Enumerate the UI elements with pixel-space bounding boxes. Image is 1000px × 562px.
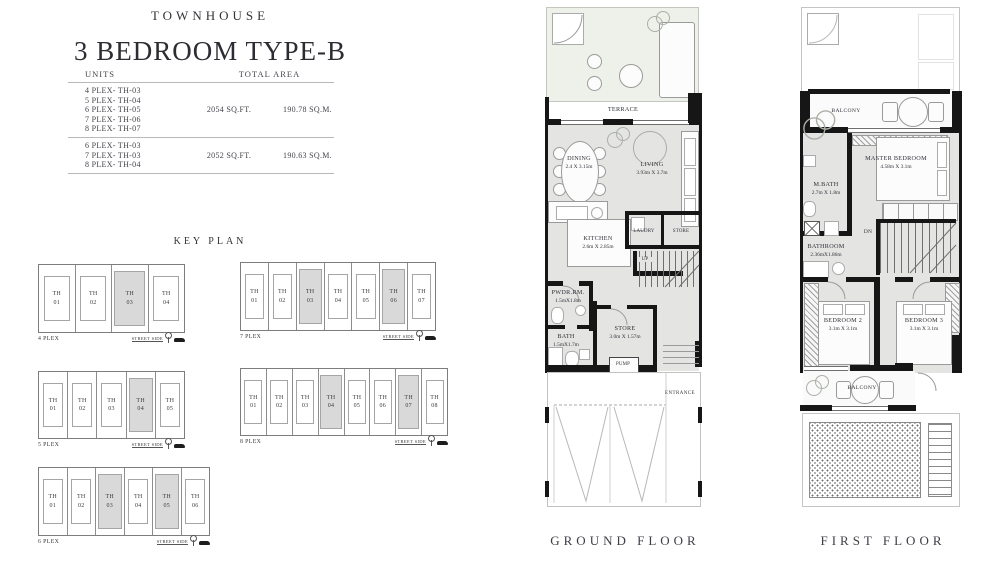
keyplan-unit-cell: TH04 bbox=[149, 265, 185, 332]
sink bbox=[579, 349, 590, 360]
unit-list: 6 PLEX- TH-037 PLEX- TH-038 PLEX- TH-04 bbox=[68, 141, 190, 170]
car-icon bbox=[174, 444, 185, 448]
outdoor-table bbox=[619, 64, 643, 88]
keyplan-unit-cell: TH01 bbox=[39, 372, 68, 438]
dn-label: DN bbox=[860, 229, 876, 235]
unit-label: TH07 bbox=[396, 369, 421, 435]
balcony-top-label: BALCONY bbox=[824, 108, 868, 116]
tree-icon bbox=[165, 332, 172, 339]
car-icon bbox=[174, 338, 185, 342]
bedroom2-label: BEDROOM 2 3.1m X 3.1m bbox=[816, 317, 870, 333]
unit-item: 6 PLEX- TH-05 bbox=[85, 105, 190, 115]
pillow bbox=[925, 304, 945, 315]
dining-label: DINING 2.4 X 3.15m bbox=[551, 155, 607, 171]
keyplan-8plex: TH01 TH02 TH03 bbox=[240, 368, 448, 445]
keyplan-unit-cell: TH05 bbox=[352, 263, 380, 330]
keyplan-unit-cell: TH04 bbox=[325, 263, 353, 330]
store-label: STORE 3.0m X 1.57m bbox=[599, 325, 651, 341]
living-rug bbox=[633, 131, 667, 165]
pouf bbox=[587, 76, 602, 91]
unit-label: TH01 bbox=[39, 468, 67, 535]
unit-label: TH04 bbox=[127, 372, 155, 438]
area-sqm: 190.78 SQ.M. bbox=[268, 105, 334, 114]
sink bbox=[824, 221, 839, 236]
terrace-label: TERRACE bbox=[573, 106, 673, 115]
pillow bbox=[903, 304, 923, 315]
unit-label: TH08 bbox=[422, 369, 447, 435]
unit-label: TH03 bbox=[112, 265, 148, 332]
tree-icon bbox=[428, 435, 435, 442]
pergola-lattice bbox=[809, 422, 921, 498]
keyplan-unit-cell: TH03 bbox=[112, 265, 149, 332]
unit-label: TH01 bbox=[39, 265, 75, 332]
unit-label: TH06 bbox=[370, 369, 395, 435]
keyplan-unit-cell: TH06 bbox=[182, 468, 210, 535]
plant-icon bbox=[806, 375, 830, 399]
unit-label: TH03 bbox=[96, 468, 124, 535]
plant-icon bbox=[607, 127, 631, 151]
keyplan-box: TH01 TH02 TH03 bbox=[38, 467, 210, 536]
unit-label: TH01 bbox=[241, 263, 268, 330]
keyplan-unit-cell: TH01 bbox=[39, 468, 68, 535]
keyplan-unit-cell: TH06 bbox=[370, 369, 396, 435]
keyplan-unit-cell: TH04 bbox=[319, 369, 345, 435]
stove bbox=[591, 207, 603, 219]
unit-label: TH06 bbox=[380, 263, 407, 330]
plex-name: 8 PLEX bbox=[240, 439, 261, 445]
keyplan-unit-cell: TH01 bbox=[39, 265, 76, 332]
car-icon bbox=[437, 441, 448, 445]
unit-label: TH02 bbox=[76, 265, 112, 332]
up-label: UP bbox=[638, 257, 652, 262]
keyplan-heading: KEY PLAN bbox=[0, 236, 420, 247]
shower-box bbox=[804, 221, 820, 236]
street-side: STREET SIDE bbox=[395, 438, 448, 445]
door-swing-arc bbox=[918, 373, 936, 391]
unit-label: TH04 bbox=[319, 369, 344, 435]
unit-label: TH05 bbox=[345, 369, 370, 435]
plex-name: 6 PLEX bbox=[38, 539, 59, 545]
keyplan-unit-cell: TH04 bbox=[127, 372, 156, 438]
first-floor-label: FIRST FLOOR bbox=[778, 533, 988, 549]
ground-floor-plan: TERRACE DINING 2.4 X 3.15m L bbox=[545, 5, 702, 510]
louver-panel bbox=[928, 423, 952, 497]
unit-label: TH07 bbox=[408, 263, 435, 330]
keyplan-unit-cell: TH03 bbox=[293, 369, 319, 435]
unit-list: 4 PLEX- TH-035 PLEX- TH-046 PLEX- TH-057… bbox=[68, 86, 190, 134]
door-swing-arc bbox=[611, 309, 627, 325]
tree-icon bbox=[416, 330, 423, 337]
keyplan-unit-cell: TH06 bbox=[380, 263, 408, 330]
unit-label: TH04 bbox=[125, 468, 153, 535]
unit-item: 6 PLEX- TH-03 bbox=[85, 141, 190, 151]
keyplan-5plex: TH01 TH02 TH03 bbox=[38, 371, 185, 448]
keyplan-unit-cell: TH01 bbox=[241, 263, 269, 330]
faint-furniture bbox=[918, 62, 954, 90]
living-label: LIVING 3.93m X 3.7m bbox=[623, 161, 681, 177]
door-swing-arc bbox=[553, 14, 583, 44]
pouf bbox=[587, 54, 602, 69]
unit-label: TH02 bbox=[68, 372, 96, 438]
unit-label: TH02 bbox=[269, 263, 296, 330]
area-sqft: 2054 SQ.FT. bbox=[190, 105, 268, 114]
keyplan-unit-cell: TH04 bbox=[125, 468, 154, 535]
bathtub bbox=[803, 261, 829, 278]
kitchen-label: KITCHEN 2.6m X 2.85m bbox=[569, 235, 627, 251]
pillow bbox=[937, 170, 947, 196]
keyplan-unit-cell: TH05 bbox=[156, 372, 184, 438]
unit-item: 4 PLEX- TH-03 bbox=[85, 86, 190, 96]
plex-name: 7 PLEX bbox=[240, 334, 261, 340]
unit-label: TH02 bbox=[68, 468, 96, 535]
stair-winder-lines bbox=[910, 223, 956, 273]
balcony-table bbox=[898, 97, 928, 127]
pillow bbox=[845, 304, 865, 315]
unit-item: 5 PLEX- TH-04 bbox=[85, 96, 190, 106]
dining-table bbox=[561, 141, 599, 203]
brand-title: TOWNHOUSE bbox=[0, 8, 420, 24]
keyplan-unit-cell: TH03 bbox=[96, 468, 125, 535]
pillow bbox=[823, 304, 843, 315]
plex-name: 5 PLEX bbox=[38, 442, 59, 448]
table-row-group: 6 PLEX- TH-037 PLEX- TH-038 PLEX- TH-04 … bbox=[68, 137, 334, 173]
keyplan-unit-cell: TH05 bbox=[345, 369, 371, 435]
unit-item: 8 PLEX- TH-04 bbox=[85, 160, 190, 170]
unit-label: TH03 bbox=[97, 372, 125, 438]
bathroom-label: BATHROOM 2.36mX1.86m bbox=[804, 243, 848, 259]
keyplan-6plex: TH01 TH02 TH03 bbox=[38, 467, 210, 545]
keyplan-unit-cell: TH07 bbox=[396, 369, 422, 435]
keyplan-unit-cell: TH02 bbox=[68, 372, 97, 438]
unit-label: TH03 bbox=[297, 263, 324, 330]
door-swing-arc bbox=[828, 282, 845, 299]
balcony-bottom-label: BALCONY bbox=[841, 385, 883, 393]
sink bbox=[803, 155, 816, 167]
powder-label: PWDR.RM. 1.5mX1.8m bbox=[547, 289, 589, 305]
street-side: STREET SIDE bbox=[132, 441, 185, 448]
keyplan-unit-cell: TH03 bbox=[97, 372, 126, 438]
store-upper-label: STORE bbox=[665, 229, 697, 234]
terrace-door bbox=[552, 13, 584, 45]
unit-label: TH01 bbox=[39, 372, 67, 438]
keyplan-unit-cell: TH02 bbox=[68, 468, 97, 535]
area-sqm: 190.63 SQ.M. bbox=[268, 151, 334, 160]
unit-item: 7 PLEX- TH-03 bbox=[85, 151, 190, 161]
units-area-table: UNITS TOTAL AREA 4 PLEX- TH-035 PLEX- TH… bbox=[68, 66, 334, 174]
keyplan-box: TH01 TH02 TH03 bbox=[240, 262, 436, 331]
keyplan-unit-cell: TH02 bbox=[267, 369, 293, 435]
table-row-group: 4 PLEX- TH-035 PLEX- TH-046 PLEX- TH-057… bbox=[68, 82, 334, 137]
bedroom3-label: BEDROOM 3 3.1m X 3.1m bbox=[898, 317, 950, 333]
unit-item: 8 PLEX- TH-07 bbox=[85, 124, 190, 134]
keyplan-unit-cell: TH02 bbox=[76, 265, 113, 332]
table-header-row: UNITS TOTAL AREA bbox=[68, 66, 334, 82]
bath-label: BATH 1.5mX1.7m bbox=[547, 333, 585, 349]
street-side: STREET SIDE bbox=[157, 538, 210, 545]
keyplan-unit-cell: TH03 bbox=[297, 263, 325, 330]
unit-label: TH04 bbox=[325, 263, 352, 330]
keyplan-unit-cell: TH07 bbox=[408, 263, 435, 330]
unit-label: TH03 bbox=[293, 369, 318, 435]
unit-label: TH05 bbox=[352, 263, 379, 330]
sink bbox=[556, 206, 588, 220]
balcony-bottom: BALCONY bbox=[803, 371, 915, 407]
unit-label: TH04 bbox=[149, 265, 185, 332]
terrace-garden bbox=[546, 7, 699, 102]
keyplan-box: TH01 TH02 TH03 bbox=[240, 368, 448, 436]
roof-terrace bbox=[801, 7, 960, 96]
street-side: STREET SIDE bbox=[383, 333, 436, 340]
roof-door bbox=[807, 13, 839, 45]
master-bedroom-label: MASTER BEDROOM 4.58m X 3.1m bbox=[852, 155, 940, 171]
page-title: 3 BEDROOM TYPE-B bbox=[0, 36, 420, 67]
first-floor-plan: BALCONY MASTER BEDROOM 4.58m X 3.1m bbox=[800, 5, 962, 510]
unit-label: TH06 bbox=[182, 468, 210, 535]
unit-label: TH05 bbox=[153, 468, 181, 535]
table-bottom-rule bbox=[68, 173, 334, 174]
column-header-total-area: TOTAL AREA bbox=[205, 69, 334, 79]
plant-icon bbox=[647, 11, 671, 35]
floorplan-page: TOWNHOUSE 3 BEDROOM TYPE-B UNITS TOTAL A… bbox=[0, 0, 1000, 562]
unit-label: TH02 bbox=[267, 369, 292, 435]
sink bbox=[575, 305, 586, 316]
unit-label: TH05 bbox=[156, 372, 184, 438]
toilet bbox=[803, 201, 816, 217]
keyplan-unit-cell: TH08 bbox=[422, 369, 447, 435]
toilet bbox=[551, 307, 564, 324]
faint-furniture bbox=[918, 14, 954, 60]
car-icon bbox=[199, 541, 210, 545]
door-swing-arc bbox=[913, 282, 930, 299]
unit-item: 7 PLEX- TH-06 bbox=[85, 115, 190, 125]
ground-floor-label: GROUND FLOOR bbox=[520, 533, 730, 549]
column-header-units: UNITS bbox=[68, 69, 205, 79]
laundry-label: LAUDRY bbox=[628, 229, 660, 234]
keyplan-unit-cell: TH01 bbox=[241, 369, 267, 435]
plex-name: 4 PLEX bbox=[38, 336, 59, 342]
keyplan-7plex: TH01 TH02 TH03 bbox=[240, 262, 436, 340]
mbath-label: M.BATH 2.7m X 1.8m bbox=[806, 181, 846, 197]
tree-icon bbox=[165, 438, 172, 445]
keyplan-4plex: TH01 TH02 TH03 bbox=[38, 264, 185, 342]
street-side: STREET SIDE bbox=[132, 335, 185, 342]
unit-label: TH01 bbox=[241, 369, 266, 435]
lower-roof-area bbox=[802, 413, 960, 507]
car-icon bbox=[425, 336, 436, 340]
door-swing-arc bbox=[808, 14, 838, 44]
balcony-chair bbox=[928, 102, 944, 122]
entry-steps bbox=[663, 345, 699, 364]
area-sqft: 2052 SQ.FT. bbox=[190, 151, 268, 160]
keyplan-unit-cell: TH02 bbox=[269, 263, 297, 330]
stair-winder-lines bbox=[665, 251, 699, 287]
entrance-label: ENTRANCE bbox=[657, 391, 703, 396]
keyplan-box: TH01 TH02 TH03 bbox=[38, 264, 185, 333]
toilet bbox=[832, 262, 845, 275]
balcony-chair bbox=[882, 102, 898, 122]
keyplan-unit-cell: TH05 bbox=[153, 468, 182, 535]
tree-icon bbox=[190, 535, 197, 542]
keyplan-box: TH01 TH02 TH03 bbox=[38, 371, 185, 439]
